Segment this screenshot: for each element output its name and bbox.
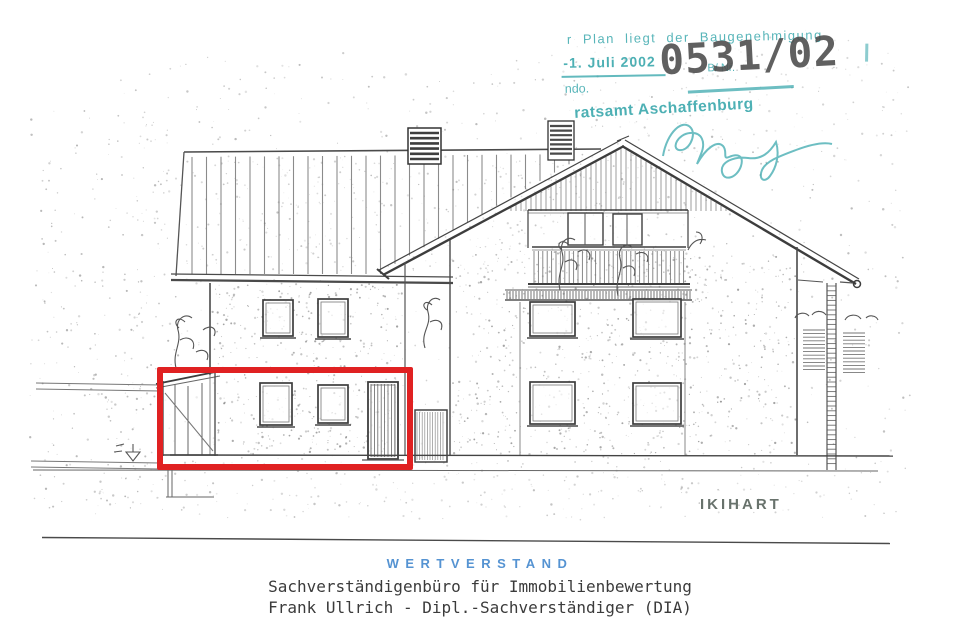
stairwell-window [415, 410, 447, 462]
level-marker [114, 444, 140, 461]
stamp-tick-mark [865, 44, 868, 62]
stamp-number-underline [688, 85, 794, 93]
letterhead-footer: WERTVERSTAND Sachverständigenbüro für Im… [0, 556, 960, 618]
downspout [827, 282, 853, 470]
architect-label: IKIHART [700, 496, 782, 513]
chimney [408, 128, 441, 164]
scanned-document-page: r Plan liegt der Baugenehmigung -1. Juli… [0, 0, 960, 641]
name-line: Frank Ullrich - Dipl.-Sachverständiger (… [0, 597, 960, 618]
balcony-railing [534, 251, 684, 283]
highlight-rectangle [157, 367, 413, 470]
approval-stamp: r Plan liegt der Baugenehmigung -1. Juli… [559, 21, 902, 177]
office-line: Sachverständigenbüro für Immobilienbewer… [0, 576, 960, 597]
left-roof [171, 149, 601, 283]
stamp-date-underline [562, 74, 666, 78]
stamp-fragment: ndo. [565, 81, 590, 95]
stamp-file-number: 0531/02 [658, 27, 840, 84]
attic-balcony-band [505, 210, 692, 300]
brand-name: WERTVERSTAND [0, 556, 960, 571]
stamp-date: -1. Juli 2002 [563, 53, 656, 71]
stamp-authority: ratsamt Aschaffenburg [574, 95, 754, 122]
footer-rule [42, 538, 890, 544]
flower-box [507, 291, 690, 299]
